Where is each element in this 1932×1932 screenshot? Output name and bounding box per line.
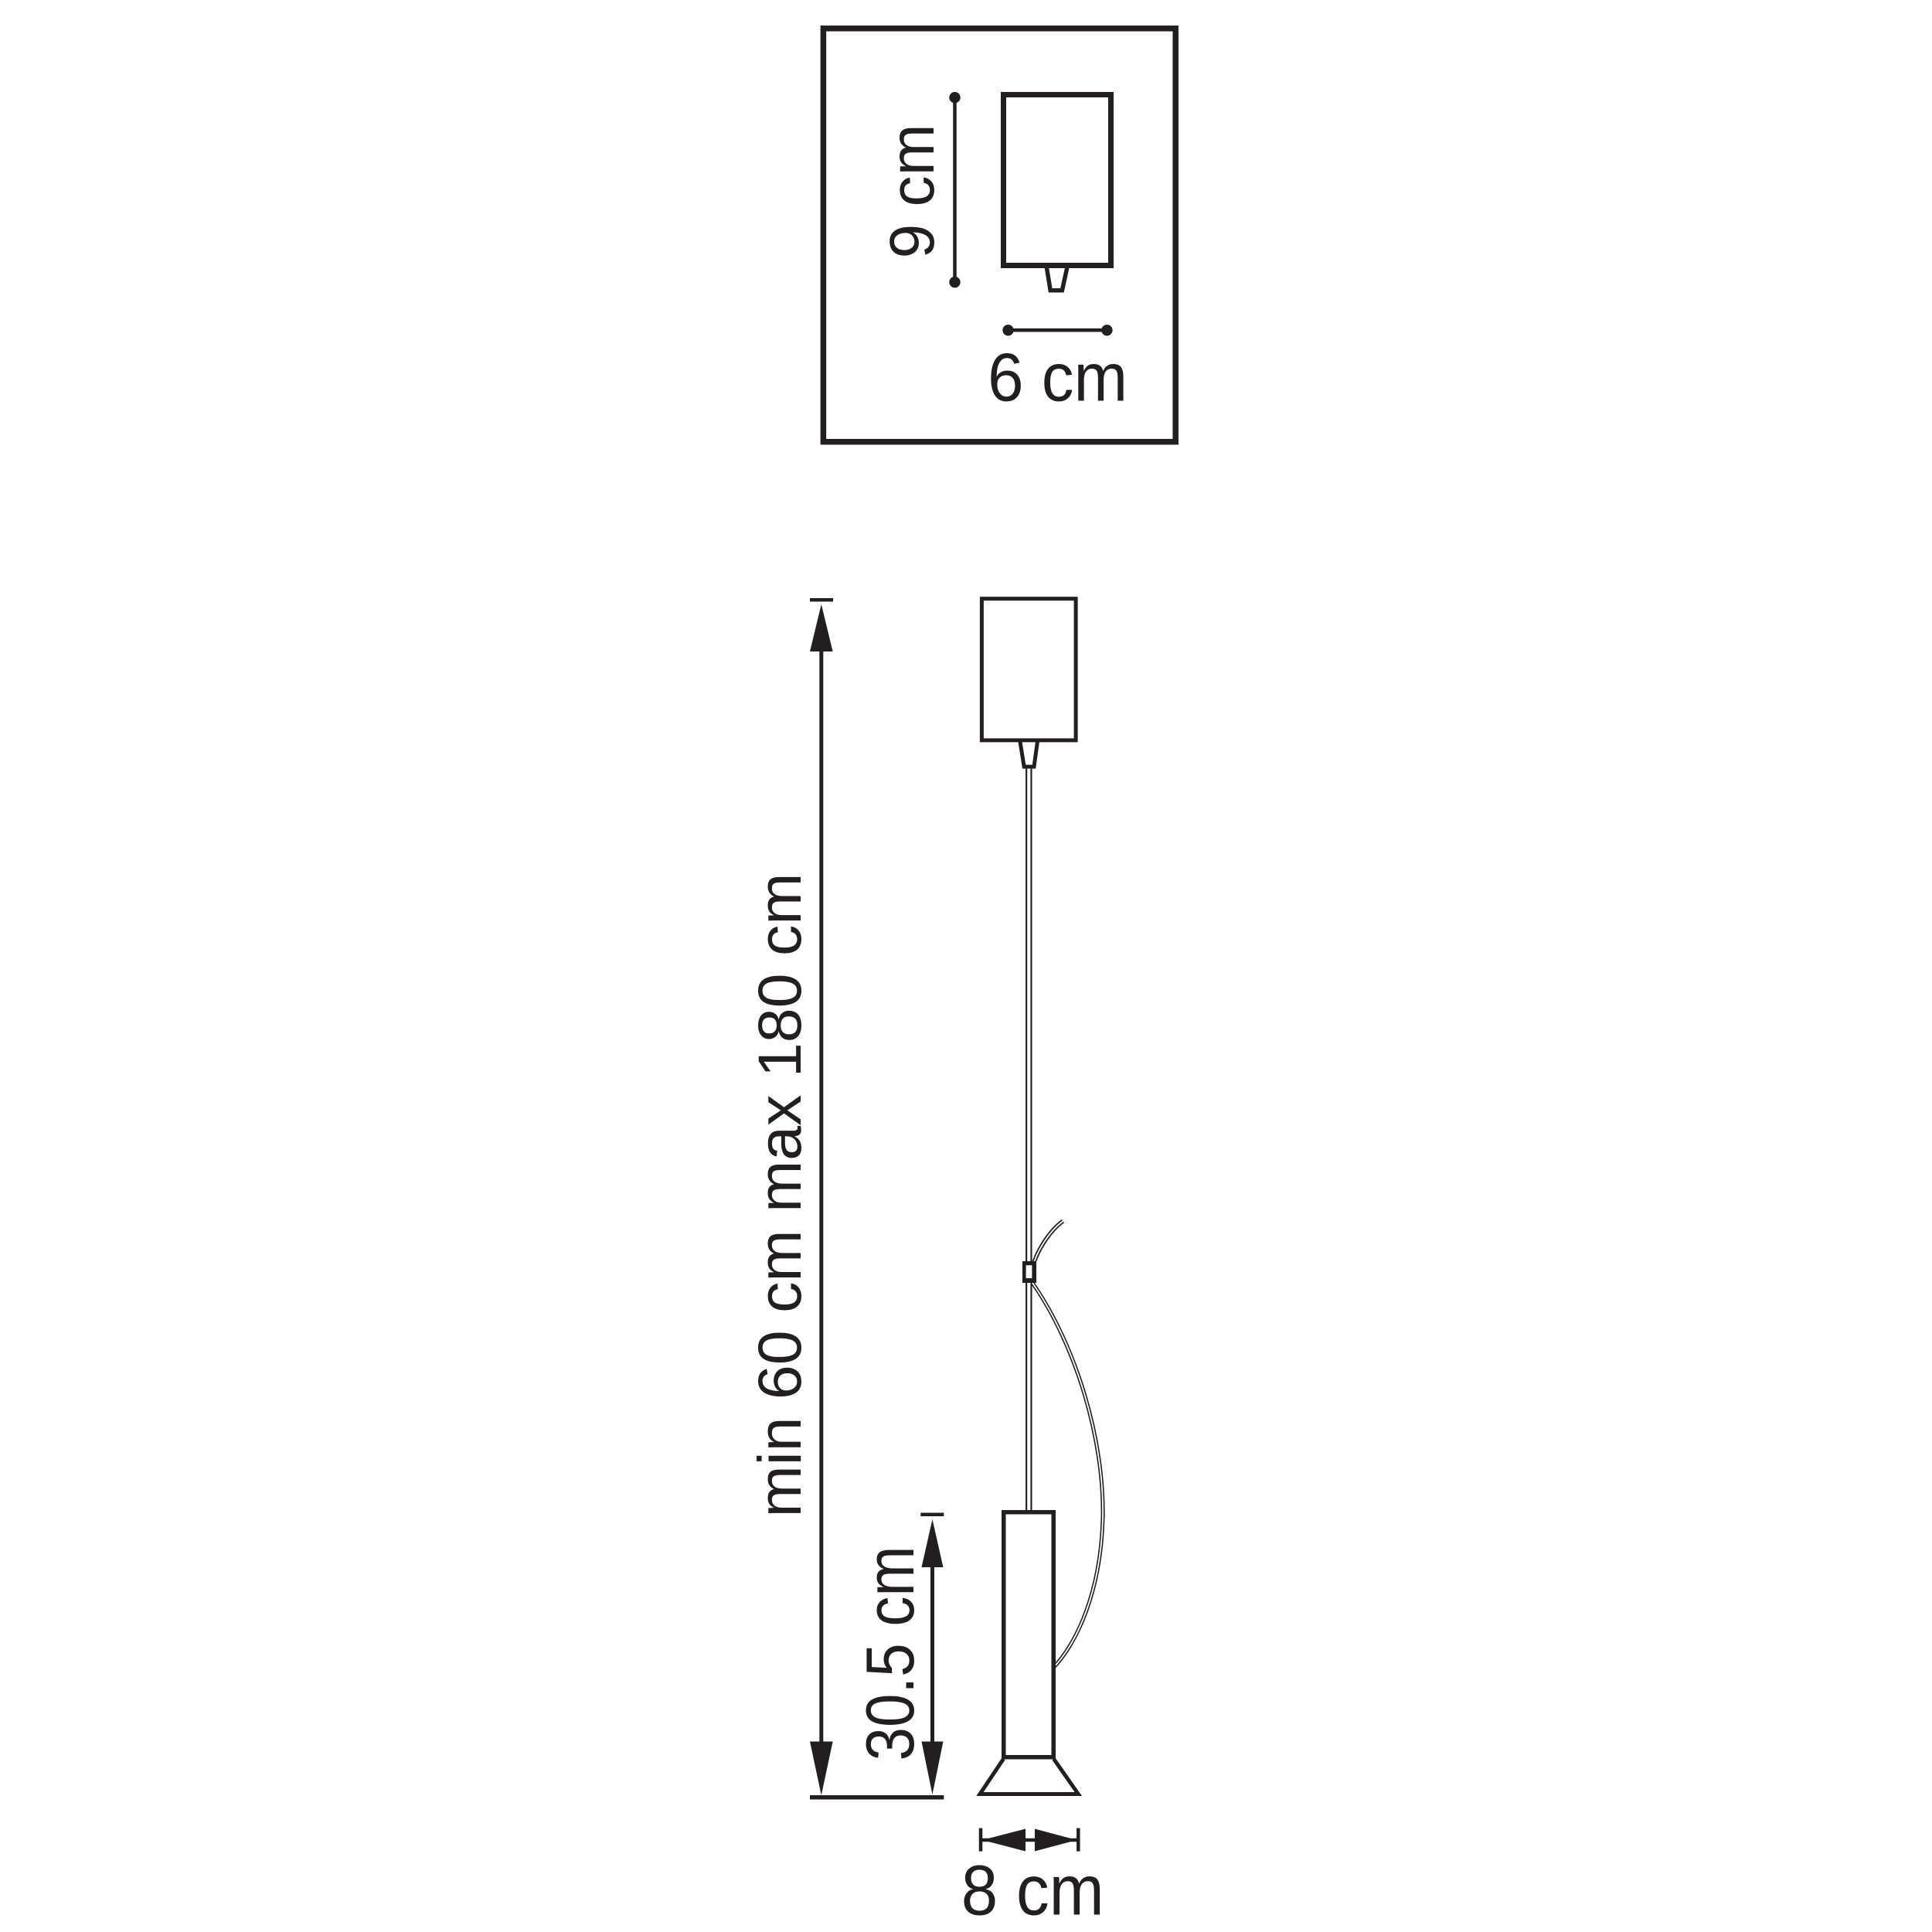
svg-text:6 cm: 6 cm: [988, 339, 1128, 416]
svg-text:9 cm: 9 cm: [877, 124, 947, 259]
svg-text:30.5 cm: 30.5 cm: [852, 1546, 928, 1761]
svg-text:8 cm: 8 cm: [961, 1851, 1104, 1930]
svg-text:min 60 cm max 180 cm: min 60 cm max 180 cm: [745, 873, 814, 1518]
